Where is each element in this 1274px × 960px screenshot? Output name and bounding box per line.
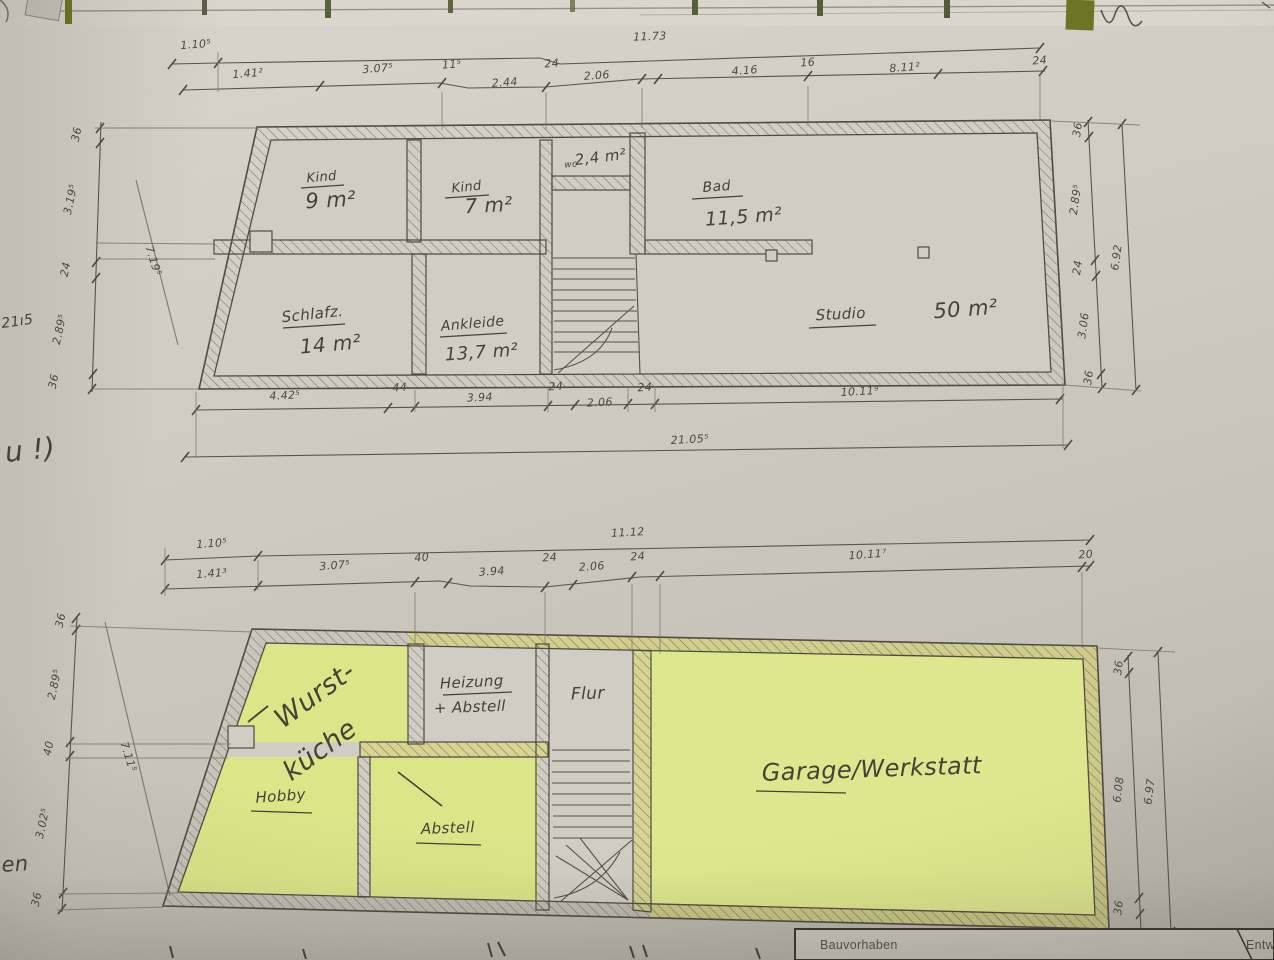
room-label: Heizung xyxy=(439,671,504,692)
dim-label: 11⁵ xyxy=(442,57,462,71)
green-post xyxy=(202,0,207,15)
dim-label: 2.44 xyxy=(491,75,518,90)
dim-label: 2.89⁵ xyxy=(50,313,69,346)
floor-plan-photo: Kind 9 m² Kind 7 m² wc 2,4 m² Bad 11,5 m… xyxy=(0,0,1274,960)
dim-label: 40 xyxy=(414,551,430,565)
margin-note: en xyxy=(1,851,30,877)
upper-plan: Kind 9 m² Kind 7 m² wc 2,4 m² Bad 11,5 m… xyxy=(46,29,1141,462)
margin-note: 21ı5 xyxy=(0,312,34,332)
dim-label: 24 xyxy=(542,551,558,565)
dim-label: 44 xyxy=(392,381,407,395)
dim-label: 1.41³ xyxy=(196,566,228,581)
plan-drawing: Kind 9 m² Kind 7 m² wc 2,4 m² Bad 11,5 m… xyxy=(0,0,1274,960)
dim-label: 1.10⁵ xyxy=(180,37,212,52)
room-label: Flur xyxy=(571,683,606,704)
dim-label: 3.19⁵ xyxy=(61,183,80,216)
dim-label: 24 xyxy=(637,381,652,395)
room-garage-highlight xyxy=(651,651,1095,915)
dim-total: 6.97 xyxy=(1141,778,1157,805)
room-label: Hobby xyxy=(255,785,307,807)
dim-label: 3.02⁵ xyxy=(33,807,52,840)
dim-label: 3.07⁵ xyxy=(362,61,394,76)
dim-label: 24 xyxy=(544,57,560,71)
dim-label: 36 xyxy=(46,373,62,390)
dim-label: 4.16 xyxy=(731,63,758,78)
margin-notes: 21ı5 u !) en xyxy=(0,312,57,877)
room-label: Studio xyxy=(815,304,866,325)
room-area: 7 m² xyxy=(464,192,513,218)
green-post xyxy=(944,0,950,18)
dim-label: 40 xyxy=(41,740,57,757)
room-label: + Abstell xyxy=(434,697,507,718)
green-post xyxy=(325,0,331,18)
dim-label: 3.94 xyxy=(466,390,493,404)
title-block-bauvorhaben: Bauvorhaben xyxy=(820,938,898,952)
room-label: Abstell xyxy=(420,818,476,838)
dim-label: 24 xyxy=(630,550,646,564)
top-edge-strip xyxy=(0,0,1274,30)
title-block-entwurf: Entwurfsv xyxy=(1246,938,1274,952)
column-post xyxy=(766,250,777,261)
dim-label: 36 xyxy=(29,891,45,908)
dim-total: 6.92 xyxy=(1108,244,1125,272)
dim-label: 24 xyxy=(548,380,563,394)
dim-label: 16 xyxy=(800,56,816,70)
dim-label: 10.11⁹ xyxy=(840,384,879,399)
dim-label: 2.89⁵ xyxy=(1067,183,1084,215)
dim-label: 10.11⁷ xyxy=(848,547,887,563)
dim-label: 8.11² xyxy=(889,60,921,75)
dim-label: 24 xyxy=(58,261,74,278)
green-post xyxy=(448,0,453,13)
dim-label: 2.06 xyxy=(578,559,605,574)
dim-label: 36 xyxy=(1070,121,1085,137)
margin-note: u !) xyxy=(3,431,57,469)
dim-label: 3.06 xyxy=(1075,312,1092,340)
dim-label: 36 xyxy=(69,126,85,143)
bottom-cutoff-marks xyxy=(170,942,760,959)
room-area: 9 m² xyxy=(305,187,357,214)
dim-label: 11.73 xyxy=(633,29,667,43)
dim-label: 36 xyxy=(1081,369,1096,385)
dim-label: 3.07⁵ xyxy=(319,558,351,573)
dim-label: 2.89⁵ xyxy=(45,668,64,701)
dim-label: 1.10⁵ xyxy=(196,536,228,551)
dim-label: 11.12 xyxy=(611,525,645,540)
room-label: Bad xyxy=(702,178,731,196)
lower-plan: Wurst- küche Heizung + Abstell Flur Gara… xyxy=(29,525,1175,937)
green-post xyxy=(817,0,823,16)
green-post xyxy=(65,0,72,24)
column-post xyxy=(918,247,929,258)
dim-total: 21.05⁵ xyxy=(670,432,709,447)
dim-label: 36 xyxy=(1111,899,1126,915)
green-post xyxy=(570,0,575,12)
dim-label: 24 xyxy=(1032,54,1048,68)
dim-label: 36 xyxy=(1111,659,1126,675)
dim-label: 1.41² xyxy=(232,66,264,81)
dim-label: 7.11⁵ xyxy=(117,740,139,773)
room-label: Kind xyxy=(306,169,338,187)
dim-label: 7.19⁵ xyxy=(142,244,164,277)
dim-label: 2.06 xyxy=(583,68,610,83)
green-post xyxy=(692,0,698,15)
dim-label: 3.94 xyxy=(478,564,505,579)
dim-label: 24 xyxy=(1070,259,1085,275)
dim-label: 2.06 xyxy=(586,395,613,409)
dim-label: 4.42⁵ xyxy=(269,388,301,403)
title-block: Bauvorhaben Entwurfsv xyxy=(795,929,1274,960)
dim-label: 20 xyxy=(1078,548,1094,562)
dim-label: 36 xyxy=(53,612,69,629)
room-area: 50 m² xyxy=(933,295,999,323)
dim-label: 6.08 xyxy=(1110,776,1126,803)
green-block xyxy=(1065,0,1094,30)
